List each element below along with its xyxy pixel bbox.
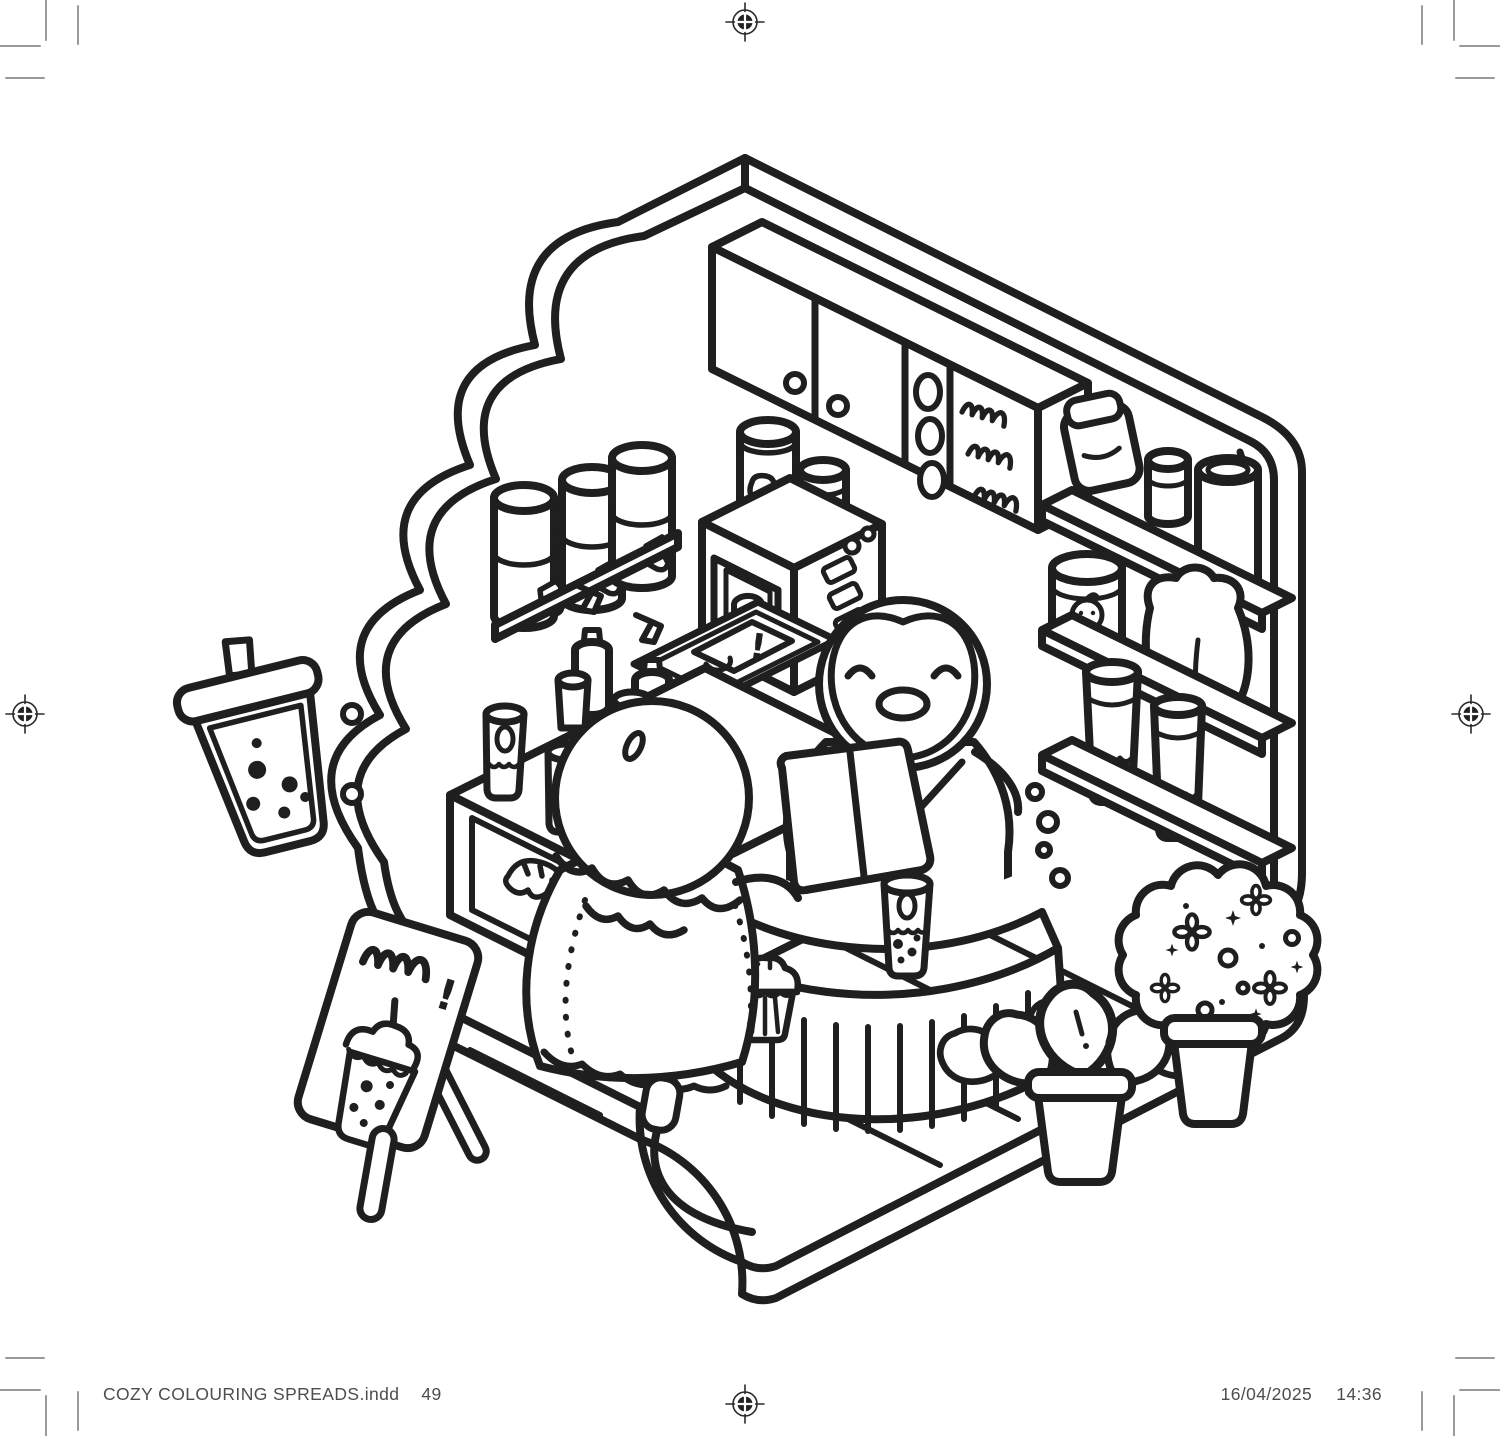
footer-page-number: 49: [421, 1384, 441, 1404]
sign-knob: [343, 705, 361, 723]
crop-mark-bottom-left: [0, 1358, 78, 1436]
registration-mark-right: [1452, 695, 1490, 733]
footer-time: 14:36: [1336, 1384, 1382, 1404]
cash-register: [781, 742, 931, 891]
footer-slug-left: COZY COLOURING SPREADS.indd49: [103, 1384, 442, 1405]
crop-mark-bottom-right: [1422, 1358, 1500, 1436]
customer-head: [555, 701, 749, 895]
customer-foot: [640, 1075, 683, 1132]
right-wall-shelves: [1042, 390, 1292, 879]
tin-can-icon: [1148, 451, 1188, 524]
cabinet-knob: [829, 397, 847, 415]
boba-cup-icon: [486, 706, 524, 798]
paper-cup-icon: [558, 673, 588, 728]
printed-page: { "page": { "background": "#ffffff", "in…: [0, 0, 1500, 1436]
footer-date: 16/04/2025: [1221, 1384, 1313, 1404]
storage-jar-icon: [1059, 390, 1143, 494]
sign-knob: [343, 785, 361, 803]
plant-pot-rim: [1164, 1018, 1262, 1044]
plant-pot: [1174, 1042, 1252, 1124]
plant-pot: [1038, 1096, 1122, 1182]
cabinet-knob: [786, 374, 804, 392]
counter-boba-cup: [884, 875, 930, 976]
page-canvas: !: [0, 0, 1500, 1436]
registration-mark-bottom: [726, 1385, 764, 1423]
coloring-illustration: !: [165, 158, 1317, 1300]
sign-cup-body: [196, 693, 345, 861]
crop-mark-top-left: [0, 0, 78, 78]
penguin-beak: [879, 690, 927, 718]
registration-mark-top: [726, 3, 764, 41]
plant-pot-rim: [1028, 1072, 1132, 1098]
crop-mark-top-right: [1422, 0, 1500, 78]
hanging-boba-sign: [165, 622, 361, 864]
cabinet-ovals: [916, 375, 944, 497]
registration-mark-left: [6, 695, 44, 733]
footer-document-name: COZY COLOURING SPREADS.indd: [103, 1384, 399, 1404]
footer-slug-right: 16/04/202514:36: [1221, 1384, 1382, 1405]
easel-sign: !: [291, 907, 489, 1221]
